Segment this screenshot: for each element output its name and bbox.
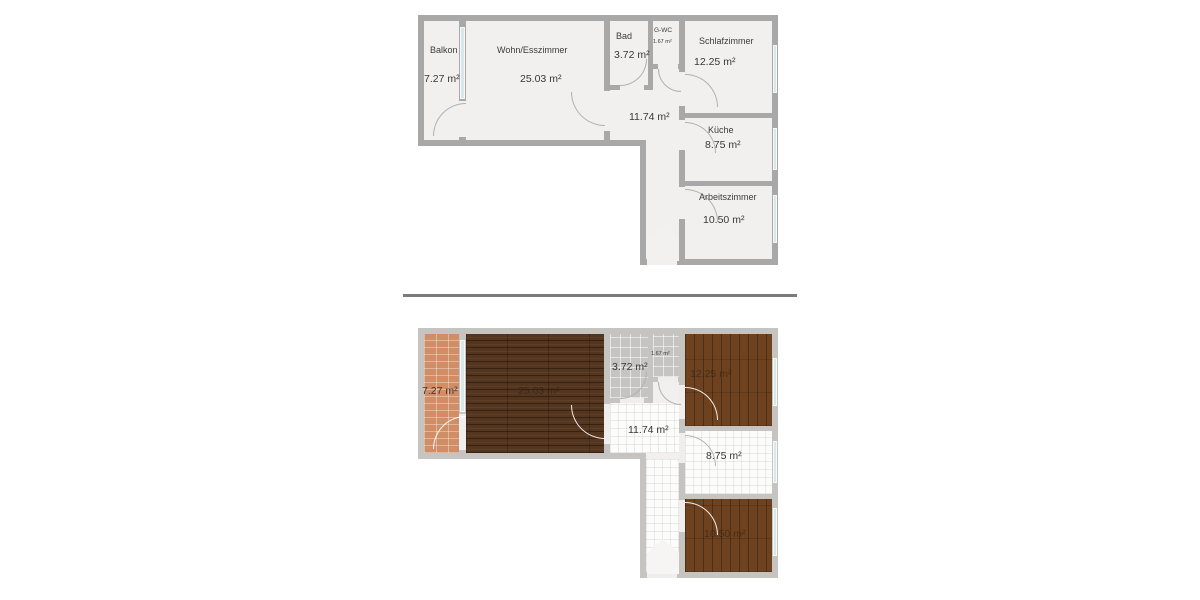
room-label-schlafzimmer: Schlafzimmer: [699, 36, 754, 46]
door-swing-arc: [658, 69, 681, 92]
window: [773, 128, 777, 170]
window: [460, 340, 465, 412]
wall-segment: [418, 453, 646, 459]
room-label-arbeitszimmer: Arbeitszimmer: [699, 192, 757, 202]
area-label-wohn-esszimmer: 25.03 m²: [518, 385, 559, 397]
window: [773, 358, 777, 406]
area-label-g-wc: 1.67 m²: [651, 351, 670, 357]
wall-segment: [640, 453, 646, 578]
entrance-door: [647, 226, 679, 261]
door-swing-arc: [571, 92, 605, 126]
window: [460, 27, 465, 99]
door-swing-arc: [433, 103, 466, 136]
door-swing-arc: [685, 74, 718, 107]
room-label-g-wc: G-WC: [654, 27, 672, 34]
area-label-schlafzimmer: 12.25 m²: [694, 56, 735, 68]
area-label-bad: 3.72 m²: [614, 49, 650, 61]
area-label-balkon: 7.27 m²: [422, 385, 458, 397]
wall-segment: [418, 328, 778, 334]
window: [773, 195, 777, 243]
area-label-schlafzimmer: 12.25 m²: [690, 368, 731, 380]
area-label-bad: 3.72 m²: [612, 361, 648, 373]
area-label-flur: 11.74 m²: [629, 111, 670, 123]
window: [773, 45, 777, 93]
floorplan-schematic: Balkon 7.27 m² Wohn/Esszimmer 25.03 m² B…: [418, 15, 778, 265]
area-label-arbeitszimmer: 10.50 m²: [703, 214, 744, 226]
plan-exterior: [418, 146, 640, 265]
area-label-flur: 11.74 m²: [628, 424, 669, 436]
door-swing-arc: [620, 59, 647, 86]
page: Balkon 7.27 m² Wohn/Esszimmer 25.03 m² B…: [0, 0, 1200, 600]
wall-segment: [685, 426, 778, 431]
plan-exterior: [418, 459, 640, 578]
wall-segment: [640, 140, 646, 265]
window: [773, 508, 777, 556]
window: [773, 441, 777, 483]
wall-segment: [418, 15, 778, 21]
area-label-g-wc: 1.67 m²: [653, 39, 672, 45]
wall-segment: [685, 113, 778, 118]
door-swing-arc: [658, 382, 681, 405]
room-label-bad: Bad: [616, 31, 632, 41]
area-label-kueche: 8.75 m²: [706, 450, 742, 462]
area-label-wohn-esszimmer: 25.03 m²: [520, 73, 561, 85]
wall-segment: [648, 328, 653, 398]
section-divider: [403, 294, 797, 297]
room-label-balkon: Balkon: [430, 45, 458, 55]
room-label-wohn-esszimmer: Wohn/Esszimmer: [497, 45, 567, 55]
floorplan-textured: 7.27 m² 25.03 m² 3.72 m² 1.67 m² 12.25 m…: [418, 328, 778, 578]
room-label-kueche: Küche: [708, 125, 734, 135]
wall-segment: [418, 140, 646, 146]
area-label-kueche: 8.75 m²: [705, 139, 741, 151]
wall-segment: [685, 494, 778, 499]
wall-segment: [685, 181, 778, 186]
area-label-arbeitszimmer: 10.50 m²: [704, 528, 745, 540]
area-label-balkon: 7.27 m²: [424, 73, 460, 85]
